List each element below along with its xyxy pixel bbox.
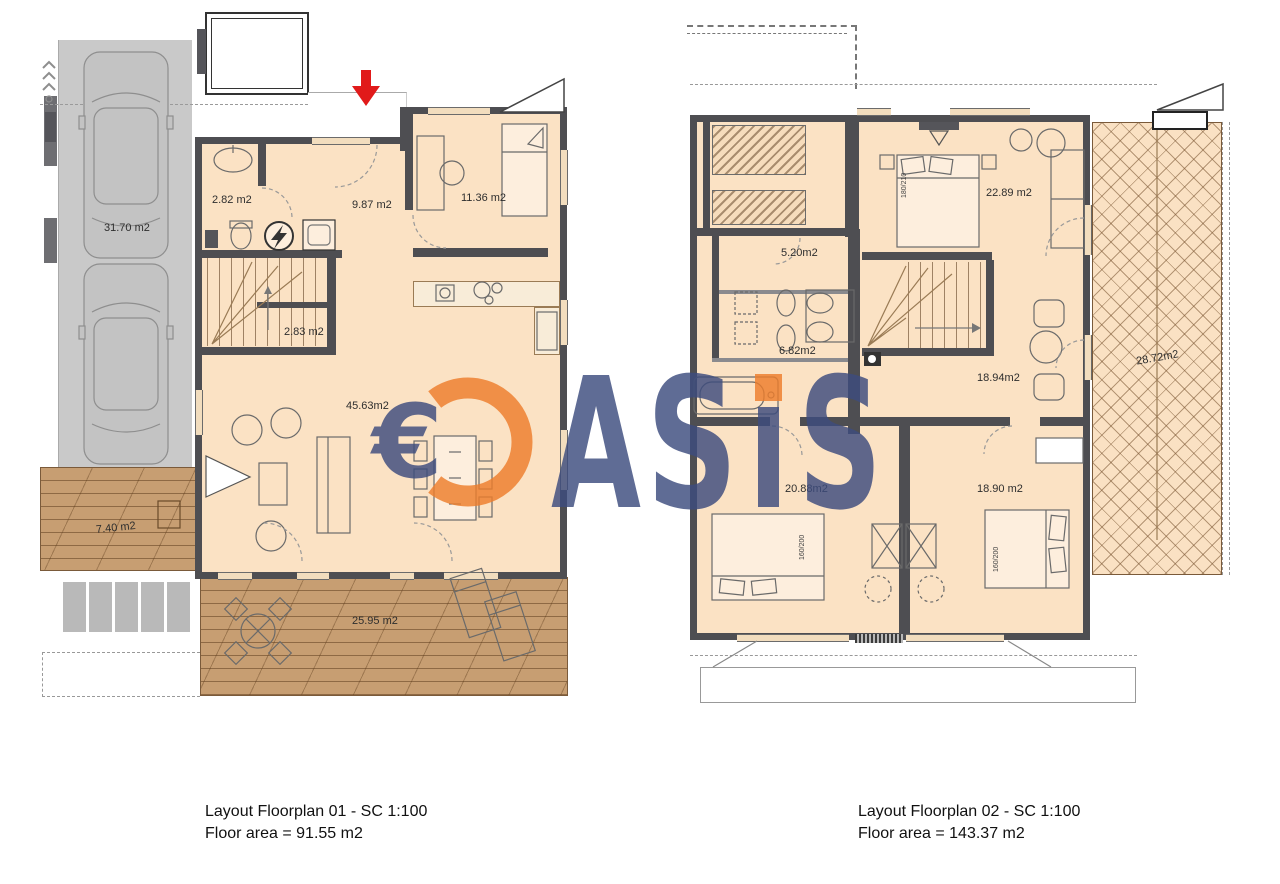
- window: [195, 390, 203, 435]
- plan2-caption: Layout Floorplan 02 - SC 1:100 Floor are…: [858, 801, 1080, 845]
- neighbor-bed: [712, 125, 806, 175]
- window: [857, 108, 891, 116]
- room-label-terrace: 25.95 m2: [352, 615, 398, 627]
- parking-stripe: [89, 582, 112, 632]
- wall: [862, 348, 994, 356]
- neighbor-bed: [712, 190, 806, 225]
- threshold-grate: [855, 634, 903, 643]
- floorplan-sheet: 2.82 m2 9.87 m2 11.36 m2 2.83 m2 45.63m2…: [0, 0, 1280, 884]
- window: [444, 572, 498, 580]
- wall: [910, 417, 1010, 426]
- window: [950, 108, 1030, 116]
- terrace: [200, 577, 568, 696]
- party-wall: [703, 115, 710, 228]
- entrance-door-opening: [312, 137, 370, 145]
- parking-stripe: [141, 582, 164, 632]
- window: [297, 572, 329, 580]
- plan1-caption: Layout Floorplan 01 - SC 1:100 Floor are…: [205, 801, 427, 845]
- wall: [800, 417, 905, 426]
- balcony-dashed-edge: [1222, 122, 1230, 575]
- plan1-caption-title: Layout Floorplan 01 - SC 1:100: [205, 801, 427, 823]
- window: [428, 107, 490, 115]
- room-label-bedroom-left: 20.88m2: [785, 483, 828, 495]
- balcony: [1092, 122, 1222, 575]
- wall: [697, 228, 847, 236]
- staircase: [908, 262, 986, 348]
- bed-size-label: 160/200: [993, 547, 1000, 572]
- room-label-bedroom: 11.36 m2: [461, 192, 506, 204]
- wall: [413, 248, 548, 257]
- awning-triangle: [1157, 84, 1223, 110]
- wall: [848, 229, 860, 434]
- wall: [1040, 417, 1085, 426]
- fence-post: [44, 218, 57, 263]
- room-label-bedroom-right: 18.90 m2: [977, 483, 1023, 495]
- roof-dashed-outline-inner: [687, 33, 847, 84]
- window: [390, 572, 414, 580]
- parking-stripe: [115, 582, 138, 632]
- balcony-door-opening: [1084, 205, 1092, 255]
- side-deck: [40, 467, 197, 571]
- window: [560, 150, 568, 205]
- wall: [712, 290, 852, 294]
- wall: [690, 417, 770, 426]
- room-label-landing: 18.94m2: [977, 372, 1020, 384]
- room-label-bathroom: 6.82m2: [779, 345, 816, 357]
- balcony-door-opening: [1084, 335, 1092, 380]
- plot-dashed-line: [40, 104, 308, 105]
- wall: [258, 144, 266, 186]
- wall: [712, 230, 719, 358]
- bed-size-label: 180/210: [901, 173, 908, 198]
- utility-box: [205, 12, 309, 95]
- room-label-driveway: 31.70 m2: [104, 222, 150, 234]
- kitchen-counter: [413, 281, 560, 307]
- window: [218, 572, 252, 580]
- parking-stripe: [63, 582, 86, 632]
- fence-post: [45, 112, 56, 142]
- room-label-corridor: 5.20m2: [781, 247, 818, 259]
- wall: [899, 417, 910, 633]
- wall: [845, 115, 859, 237]
- plan2-caption-title: Layout Floorplan 02 - SC 1:100: [858, 801, 1080, 823]
- plan2-caption-area: Floor area = 143.37 m2: [858, 823, 1080, 845]
- kitchen-sink-unit: [534, 307, 560, 355]
- wall: [202, 250, 342, 258]
- window: [737, 634, 849, 642]
- room-label-bedroom-master: 22.89 m2: [986, 187, 1032, 199]
- parking-stripe: [167, 582, 190, 632]
- window: [906, 634, 1004, 642]
- stair-handrail: [257, 302, 335, 308]
- wall: [712, 358, 852, 362]
- room-label-living: 45.63m2: [346, 400, 389, 412]
- plot-boundary-dashed: [42, 652, 200, 697]
- red-arrow-down-icon: [352, 70, 380, 106]
- lower-canopy-dashed: [690, 655, 1137, 656]
- window: [560, 300, 568, 345]
- roof-dashed-line: [690, 84, 1157, 85]
- lower-canopy-outline: [700, 667, 1136, 703]
- utility-box-tab: [197, 29, 206, 74]
- bed-size-label: 160/200: [799, 535, 806, 560]
- room-label-hallway: 9.87 m2: [352, 199, 392, 211]
- wall: [405, 114, 413, 210]
- plan1-caption-area: Floor area = 91.55 m2: [205, 823, 427, 845]
- window: [560, 430, 568, 490]
- wall: [862, 252, 992, 260]
- room-label-stairs: 2.83 m2: [284, 326, 324, 338]
- wall: [986, 260, 994, 352]
- wall: [202, 347, 335, 355]
- room-label-wc: 2.82 m2: [212, 194, 252, 206]
